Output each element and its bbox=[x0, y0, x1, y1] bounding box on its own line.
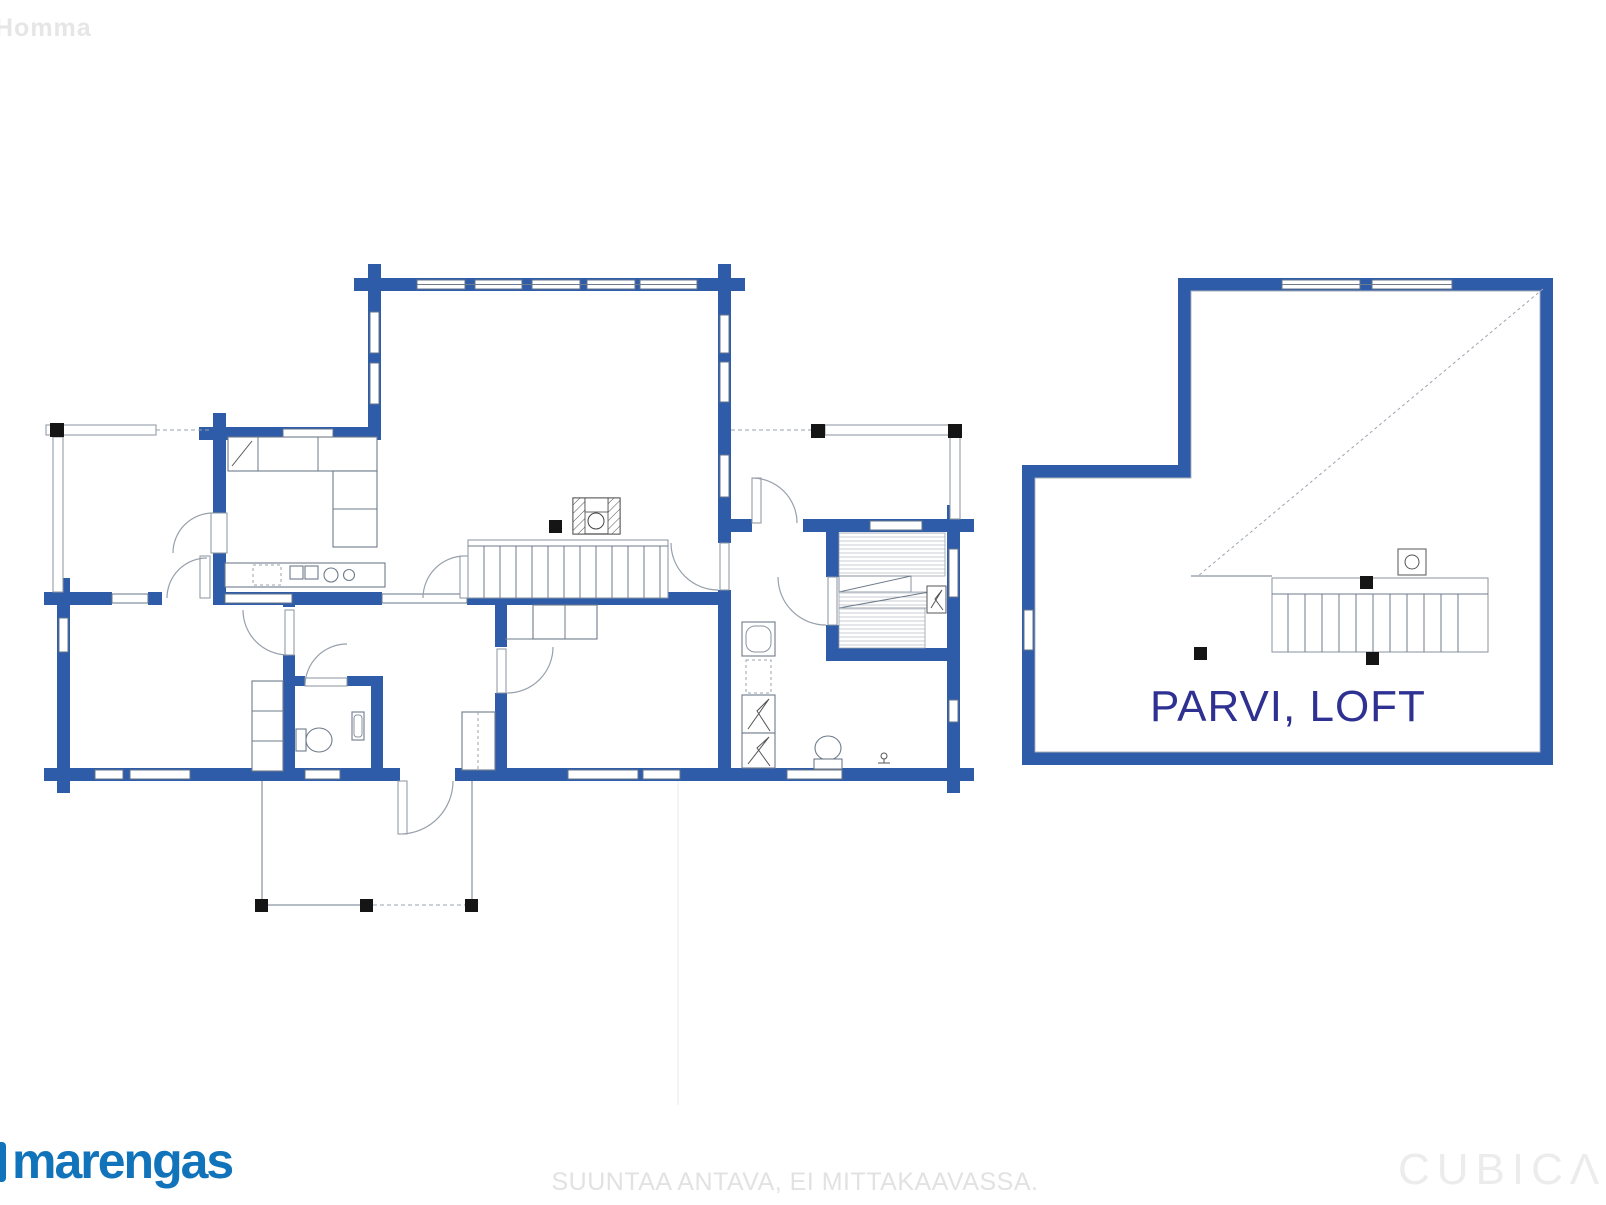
logo-cropped-letter bbox=[0, 1142, 6, 1182]
shower-icon bbox=[878, 753, 890, 763]
marengas-logo: marengas bbox=[12, 1132, 232, 1190]
floorplan-drawing bbox=[0, 0, 1606, 1205]
scale-disclaimer: SUUNTAA ANTAVA, EI MITTAKAAVASSA. bbox=[495, 1168, 1095, 1197]
floor-plan-page: Homma PARVI, LOFT marengas SUUNTAA ANTAV… bbox=[0, 0, 1606, 1205]
stove-icon bbox=[290, 566, 303, 579]
loft-staircase bbox=[1272, 578, 1488, 652]
roof-slope-line bbox=[1198, 289, 1543, 576]
main-floor-plan bbox=[44, 264, 974, 1105]
toilet-icon bbox=[296, 729, 306, 751]
parvi-loft-label: PARVI, LOFT bbox=[1088, 682, 1488, 732]
sauna-benches bbox=[839, 533, 946, 648]
midroom-fixtures bbox=[505, 605, 597, 639]
sink-icon bbox=[324, 568, 338, 582]
cubica-watermark: CUBICΛ bbox=[1398, 1145, 1606, 1195]
hall-wardrobe bbox=[252, 681, 283, 771]
wc-toilet-icon bbox=[815, 736, 841, 760]
kitchen-fixtures bbox=[225, 437, 385, 587]
terrace-railing bbox=[825, 425, 949, 435]
homma-watermark: Homma bbox=[0, 14, 92, 43]
main-exterior-walls bbox=[44, 264, 974, 793]
fireplace bbox=[573, 498, 620, 534]
chimney bbox=[1398, 549, 1426, 575]
staircase bbox=[468, 540, 668, 598]
